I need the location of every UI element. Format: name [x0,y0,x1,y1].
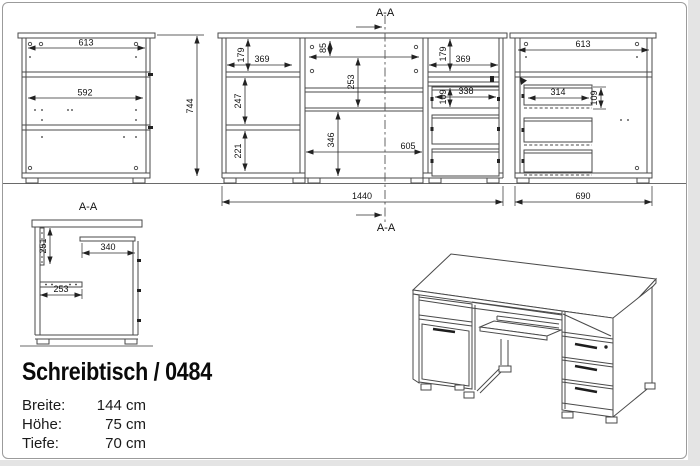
dim-side-total-depth: 690 [575,191,590,201]
view-rear-pedestal: 613 592 744 [18,33,204,183]
dim-section-panel-height: 251 [38,238,48,253]
dim-front-right-width: 369 [455,54,470,64]
technical-drawing-sheet: 613 592 744 [0,0,700,466]
dim-rear-inner-width: 592 [77,88,92,98]
spec-value: 70 cm [84,434,146,453]
dim-front-left-bottom-height: 221 [233,143,243,158]
view-section-aa: A-A 251 340 253 [20,201,153,346]
spec-label: Breite: [22,396,84,415]
isometric-sketch [413,254,656,423]
section-marker-top: A-A [376,7,395,19]
dim-front-mid-tray-height: 253 [346,74,356,89]
drawing-title: Schreibtisch / 0484 [22,358,306,387]
spec-row-width: Breite: 144 cm [22,396,352,415]
dim-front-mid-knee-height: 346 [326,132,336,147]
dim-side-drawer-height: 109 [589,90,599,105]
dim-front-mid-width: 605 [400,141,415,151]
view-side-pedestal: 613 314 109 690 [510,33,656,206]
dim-front-total-width: 1440 [352,191,372,201]
dim-front-left-width: 369 [254,54,269,64]
dim-rear-top-width: 613 [78,38,93,48]
dim-front-right-drawer-width: 338 [458,86,473,96]
dim-side-top-width: 613 [575,39,590,49]
view-front: 179 369 247 221 85 253 346 605 179 369 1… [218,7,507,234]
spec-value: 144 cm [84,396,146,415]
section-title: A-A [79,201,98,213]
keyhole [604,345,607,348]
spec-value: 75 cm [84,415,146,434]
section-marker-bottom: A-A [377,222,396,234]
dim-front-right-open-height: 179 [438,46,448,61]
spec-label: Höhe: [22,415,84,434]
dim-front-left-open-height: 179 [236,47,246,62]
spec-label: Tiefe: [22,434,84,453]
dim-side-drawer-depth: 314 [550,87,565,97]
spec-row-height: Höhe: 75 cm [22,415,352,434]
dim-front-mid-rail-height: 85 [318,43,328,53]
dim-section-shelf-depth: 340 [100,242,115,252]
dim-section-rail-depth: 253 [53,284,68,294]
spec-table: Breite: 144 cm Höhe: 75 cm Tiefe: 70 cm [22,396,352,453]
dim-front-left-mid-height: 247 [233,93,243,108]
title-block: Schreibtisch / 0484 Breite: 144 cm Höhe:… [22,358,352,453]
dim-total-height: 744 [185,98,195,113]
spec-row-depth: Tiefe: 70 cm [22,434,352,453]
